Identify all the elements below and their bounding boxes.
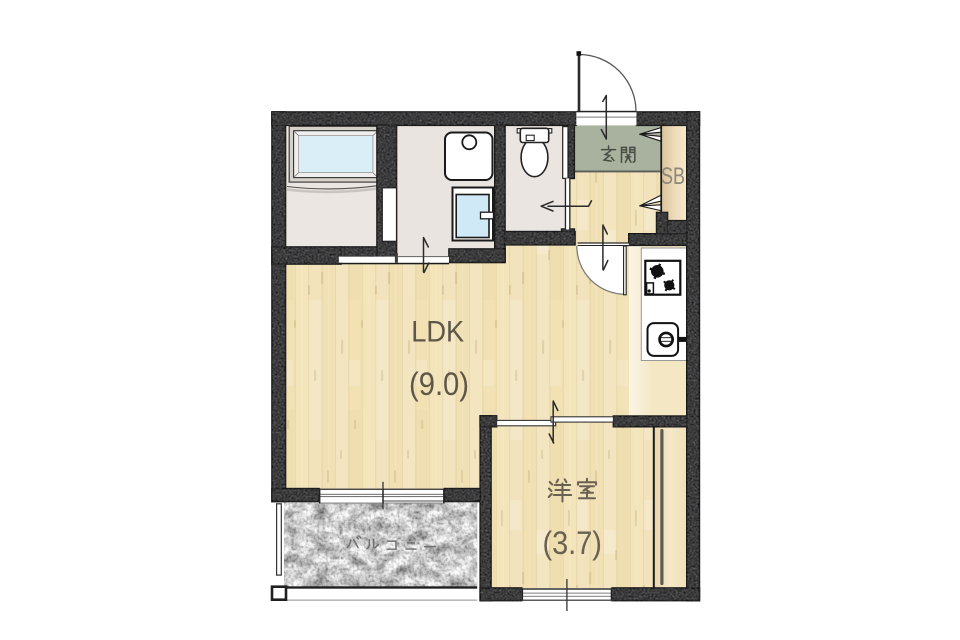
svg-text:LDK: LDK: [411, 316, 464, 349]
svg-text:(3.7): (3.7): [542, 525, 602, 561]
svg-text:SB: SB: [661, 163, 685, 190]
svg-text:(9.0): (9.0): [409, 366, 469, 402]
